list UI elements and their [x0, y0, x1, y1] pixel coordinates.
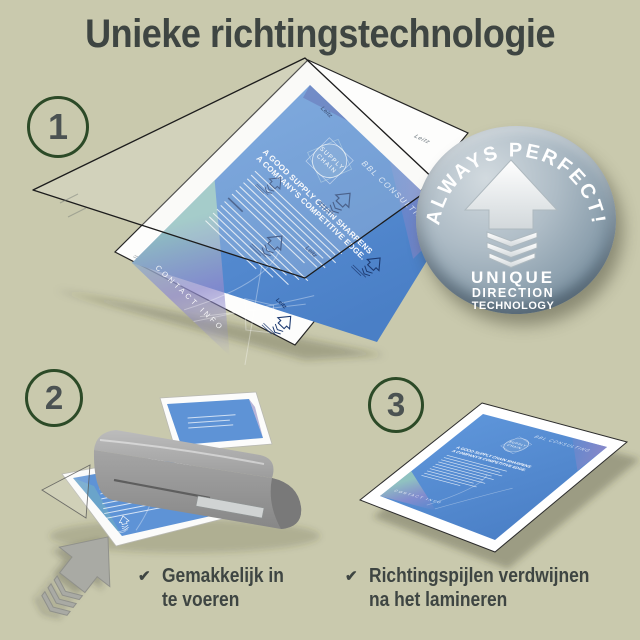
badge-arrow-icon — [465, 160, 557, 268]
pouch-flap — [42, 465, 90, 518]
laminator-machine — [94, 430, 301, 529]
doc-heading: A GOOD SUPPLY CHAIN SHARPENS — [261, 148, 375, 257]
badge-line3: TECHNOLOGY — [472, 300, 555, 312]
output-document — [160, 392, 272, 452]
supply-chain-logo: SUPPLY CHAIN — [299, 131, 360, 191]
direction-arrow-prints: Leitz Leitz Leitz — [181, 106, 437, 356]
pouch-watermark: Leitz — [274, 297, 287, 310]
caption-right-line1: Richtingspijlen verdwijnen — [369, 565, 589, 589]
step-2-number: 2 — [45, 379, 63, 417]
doc-heading: A GOOD SUPPLY CHAIN SHARPENS — [455, 446, 533, 469]
caption-arrows-disappear: ✔ Richtingspijlen verdwijnen na het lami… — [345, 565, 622, 612]
line-art — [183, 232, 322, 367]
body-text-lines — [205, 171, 344, 305]
pouch-watermark: Leitz — [175, 226, 192, 236]
direction-arrow-icon — [28, 520, 132, 632]
step-1-circle: 1 — [27, 96, 89, 158]
badge-line2: DIRECTION — [472, 286, 554, 300]
doc-heading: A COMPANY'S COMPETITIVE EDGE. — [254, 154, 367, 262]
pouch-watermark: Leitz — [237, 199, 255, 209]
always-perfect-badge: ALWAYS PERFECT! UNIQUE DIRECTION TECHNOL… — [416, 126, 616, 314]
carrier-sheet-prints: Leitz Leitz Leitz Leitz — [133, 84, 431, 314]
step-3-circle: 3 — [368, 377, 424, 433]
page-title: Unieke richtingstechnologie — [0, 12, 640, 57]
caption-left-line1: Gemakkelijk in — [162, 565, 284, 589]
page-title-text: Unieke richtingstechnologie — [85, 12, 555, 57]
doc-brand: BBL CONSULTING — [532, 435, 592, 453]
sheet-shadow — [55, 290, 385, 360]
doc-footer: CONTACT INFO — [393, 489, 444, 505]
caption-right-line2: na het lamineren — [369, 589, 589, 613]
laminator-shadow — [50, 519, 320, 553]
logo-text: CHAIN — [315, 153, 338, 175]
check-icon: ✔ — [345, 567, 358, 585]
doc-footer: CONTACT INFO — [154, 263, 227, 332]
doc-heading: A COMPANY'S COMPETITIVE EDGE. — [451, 449, 528, 472]
pouch-watermark: Leitz — [304, 245, 318, 259]
supply-chain-logo: SUPPLY CHAIN — [496, 435, 536, 455]
pouch-watermark: Leitz — [319, 106, 333, 120]
check-icon: ✔ — [138, 567, 151, 585]
step-3-number: 3 — [387, 386, 405, 424]
logo-text: SUPPLY — [318, 145, 346, 171]
flyer-content: BBL CONSULTING SUPPLY CHAIN A GOOD SUPPL… — [132, 85, 452, 367]
flyer-document — [132, 85, 452, 342]
result-shadow — [373, 420, 640, 569]
entry-document — [62, 452, 234, 546]
film-corner-marks — [60, 194, 86, 217]
caption-left-line2: te voeren — [162, 589, 284, 613]
logo-text: CHAIN — [506, 444, 523, 450]
badge-line1: UNIQUE — [471, 268, 555, 287]
transparent-pouch-film — [33, 58, 438, 278]
step-1-number: 1 — [48, 106, 68, 148]
result-flyer-content: BBL CONSULTING SUPPLY CHAIN A GOOD SUPPL… — [380, 414, 607, 529]
infographic-page: Leitz Leitz Leitz Leitz BBL CONSULTING S… — [0, 0, 640, 640]
result-flyer — [380, 414, 607, 540]
body-text-lines — [421, 455, 508, 492]
logo-text: SUPPLY — [508, 440, 528, 447]
caption-easy-feed: ✔ Gemakkelijk in te voeren — [138, 565, 302, 612]
pouch-watermark: Leitz — [355, 157, 374, 168]
step-2-circle: 2 — [25, 369, 83, 427]
